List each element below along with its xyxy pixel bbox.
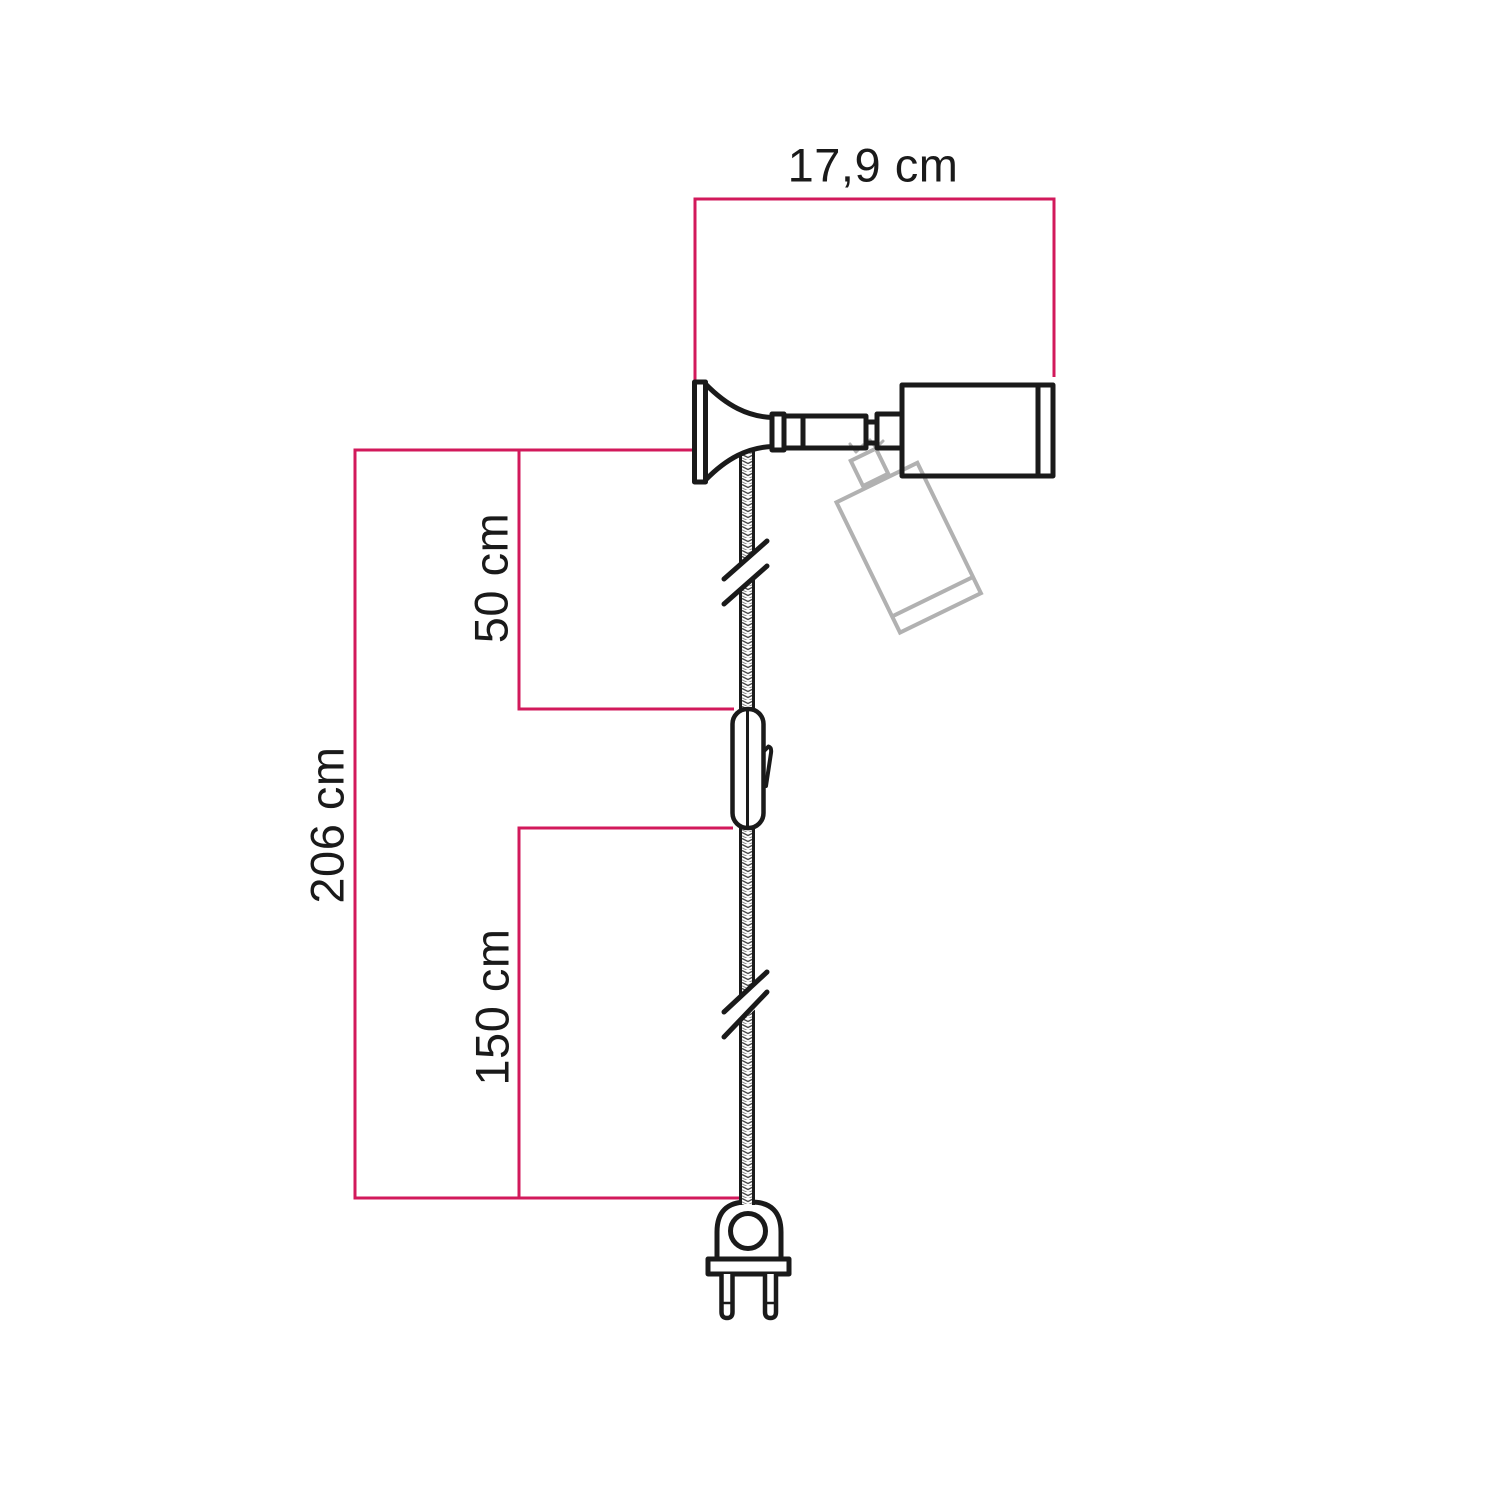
plug-prong-left (722, 1274, 733, 1318)
plug-prongs (722, 1274, 777, 1318)
upper-cable-dimension-label: 50 cm (465, 513, 518, 644)
cable-plug-junction (739, 1192, 755, 1205)
total-height-dimension-label: 206 cm (301, 746, 354, 903)
diagram-page: 17,9 cm 206 cm 50 cm 150 cm (0, 0, 1500, 1500)
lower-cable-dimension-label: 150 cm (466, 928, 519, 1085)
lamp-dimension-diagram: 17,9 cm 206 cm 50 cm 150 cm (0, 0, 1500, 1500)
total-height-dimension (355, 450, 741, 1198)
upper-cable-dimension (519, 450, 734, 709)
ghost-rim-line (892, 577, 973, 616)
width-dimension-label: 17,9 cm (788, 139, 959, 192)
width-dimension (695, 199, 1054, 383)
inline-switch (733, 709, 772, 828)
plug-prong-right (765, 1274, 776, 1318)
width-dimension-line (695, 199, 1054, 383)
upper-cable-dimension-line (519, 450, 734, 709)
plug-hole (731, 1214, 766, 1249)
dimension-labels: 17,9 cm 206 cm 50 cm 150 cm (301, 139, 959, 1086)
total-height-dimension-line (355, 450, 741, 1198)
lower-cable-dimension (519, 828, 733, 1198)
lower-cable-dimension-line (519, 828, 733, 1198)
euro-plug (708, 1202, 789, 1318)
plug-flange (708, 1259, 789, 1274)
dimension-lines (355, 199, 1054, 1198)
